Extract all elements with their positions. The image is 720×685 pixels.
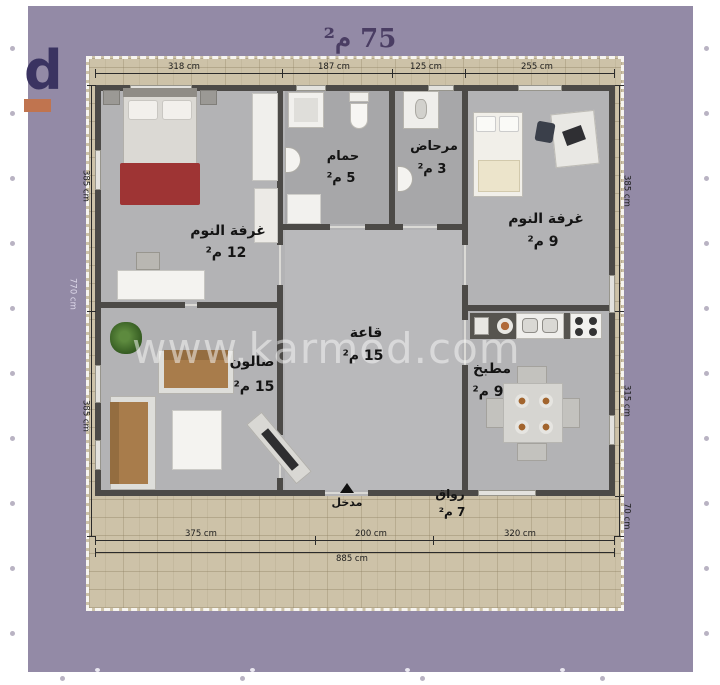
wardrobe [252, 93, 278, 181]
pillow [499, 116, 519, 132]
room-label-bedroom1-name: غرفة النوم [190, 224, 266, 239]
dim-tick [87, 536, 96, 537]
dim-tick [315, 536, 316, 545]
karmod-logo-bar [24, 99, 51, 112]
margin-dot [10, 501, 15, 506]
wall-left [95, 85, 101, 496]
bed-headboard [123, 88, 197, 97]
dim-line-top [95, 73, 615, 74]
dim-label-bottom-3: 320 cm [504, 530, 536, 539]
window [518, 85, 562, 91]
plate-with-food [539, 394, 553, 408]
dim-tick [614, 69, 615, 78]
plate-with-food [539, 420, 553, 434]
margin-dot [704, 501, 709, 506]
margin-dot [420, 676, 425, 681]
wall-bottom-left [95, 490, 325, 496]
room-label-kitchen-area: 9 م² [472, 385, 503, 400]
margin-dot [704, 566, 709, 571]
sink-basin [542, 318, 558, 333]
dim-tick [95, 548, 96, 557]
dim-label-bottom-total: 885 cm [336, 555, 368, 564]
window [609, 415, 615, 445]
dim-label-left-2: 385 cm [81, 400, 90, 432]
margin-dot [10, 631, 15, 636]
page-title: 75 م² [250, 24, 470, 54]
margin-dot [704, 306, 709, 311]
wall-center-right-a [462, 85, 468, 245]
margin-dot [704, 176, 709, 181]
margin-dot [10, 111, 15, 116]
wall-bedroom1-bottom-a [95, 302, 185, 308]
dim-tick [615, 536, 624, 537]
door-threshold [330, 226, 365, 228]
wall-center-right-c [462, 365, 468, 490]
dim-tick [615, 85, 624, 86]
squat-toilet-hole [415, 99, 427, 119]
red-blanket [120, 163, 200, 205]
margin-dot [704, 436, 709, 441]
dining-chair [517, 443, 547, 461]
margin-dot [10, 306, 15, 311]
room-label-salon-name: صالون [230, 355, 275, 370]
room-label-wc-name: مرحاض [410, 140, 458, 154]
wall-bath-bottom-b [365, 224, 403, 230]
door-threshold [464, 245, 466, 285]
dining-chair [486, 398, 504, 428]
dining-table [503, 383, 563, 443]
canvas-edge-dot [560, 668, 565, 672]
window [95, 440, 101, 470]
dim-tick [614, 548, 615, 557]
wall-center-right-b [462, 285, 468, 320]
window [609, 275, 615, 313]
room-label-porch-area: 7 م² [439, 506, 466, 519]
margin-dot [704, 111, 709, 116]
dim-label-bottom-1: 375 cm [185, 530, 217, 539]
coffee-table [172, 410, 222, 470]
dim-line-bottom-segments [95, 540, 615, 541]
canvas-edge-dot [95, 668, 100, 672]
window [95, 150, 101, 190]
shower-tray [294, 98, 318, 122]
dim-tick [87, 85, 96, 86]
dim-label-right-2: 315 cm [622, 385, 631, 417]
room-label-bedroom2-name: غرفة النوم [508, 212, 584, 227]
wall-bath-bottom-a [282, 224, 330, 230]
pillow [162, 100, 192, 120]
margin-dot [704, 371, 709, 376]
margin-dot [10, 241, 15, 246]
bath-mat [287, 194, 321, 224]
room-label-kitchen-name: مطبخ [473, 362, 511, 377]
margin-dot [704, 241, 709, 246]
dim-label-top-4: 255 cm [521, 63, 553, 72]
window [296, 85, 326, 91]
cream-blanket [478, 160, 520, 192]
desk-chair [534, 121, 555, 144]
dim-tick [614, 536, 615, 545]
door-threshold [279, 245, 281, 285]
nightstand [103, 90, 120, 105]
canvas-edge-dot [250, 668, 255, 672]
dim-tick [392, 69, 393, 78]
room-label-bedroom1-area: 12 م² [206, 246, 247, 261]
room-label-salon-area: 15 م² [234, 380, 275, 395]
dim-tick [87, 311, 96, 312]
entrance-arrow-icon [340, 483, 354, 493]
dim-label-top-1: 318 cm [168, 63, 200, 72]
watermark: www.karmod.com [132, 324, 521, 373]
wall-bath-wc-divider [389, 91, 395, 224]
dim-tick [282, 69, 283, 78]
toilet-bowl [350, 103, 368, 129]
burner [589, 328, 597, 336]
sofa-three-seat-cushion [110, 402, 148, 484]
window [95, 365, 101, 403]
pillow [128, 100, 158, 120]
dining-chair [562, 398, 580, 428]
dim-label-bottom-2: 200 cm [355, 530, 387, 539]
dim-tick [615, 311, 624, 312]
dim-label-left-total: 770 cm [68, 278, 77, 310]
dim-tick [433, 536, 434, 545]
room-label-hall-name: قاعة [350, 326, 382, 341]
dim-tick [465, 69, 466, 78]
dim-label-top-3: 125 cm [410, 63, 442, 72]
dim-label-right-3: 70 cm [622, 503, 631, 529]
margin-dot [10, 371, 15, 376]
burner [589, 317, 597, 325]
dresser [117, 270, 205, 300]
room-label-bedroom2-area: 9 م² [527, 235, 558, 250]
dim-label-right-1: 385 cm [622, 175, 631, 207]
room-label-bathroom-name: حمام [327, 150, 360, 164]
door-threshold [403, 226, 437, 228]
dim-label-left-1: 385 cm [81, 170, 90, 202]
margin-dot [10, 176, 15, 181]
sink-basin [522, 318, 538, 333]
burner [575, 328, 583, 336]
stove [570, 313, 602, 339]
room-label-wc-area: 3 م² [418, 163, 447, 177]
margin-dot [60, 676, 65, 681]
canvas-edge-dot [405, 668, 410, 672]
margin-dot [240, 676, 245, 681]
dim-line-bottom-total [95, 552, 615, 553]
karmod-logo-letter: d [24, 44, 63, 98]
dim-tick [615, 496, 624, 497]
dim-label-top-2: 187 cm [318, 63, 350, 72]
pillow [476, 116, 496, 132]
entrance-label: مدخل [332, 497, 363, 509]
toilet [349, 92, 369, 102]
wall-bedroom1-bottom-b [197, 302, 277, 308]
dim-tick [95, 536, 96, 545]
plate-with-food [515, 394, 529, 408]
nightstand [200, 90, 217, 105]
dining-chair [517, 366, 547, 384]
wall-bedroom2-bottom [468, 305, 615, 311]
margin-dot [10, 46, 15, 51]
dim-tick [95, 69, 96, 78]
margin-dot [10, 436, 15, 441]
burner [575, 317, 583, 325]
wall-center-left-c [277, 478, 283, 490]
margin-dot [704, 46, 709, 51]
margin-dot [704, 631, 709, 636]
room-label-hall-area: 15 م² [343, 349, 384, 364]
stool [136, 252, 160, 270]
floor-plan-page: { "title": "75 م²", "watermark": "www.ka… [0, 0, 720, 685]
window [478, 490, 536, 496]
margin-dot [10, 566, 15, 571]
margin-dot [600, 676, 605, 681]
room-label-bathroom-area: 5 م² [327, 172, 356, 186]
plate-with-food [515, 420, 529, 434]
room-label-porch-name: رواق [435, 488, 464, 501]
door-threshold [185, 304, 197, 306]
